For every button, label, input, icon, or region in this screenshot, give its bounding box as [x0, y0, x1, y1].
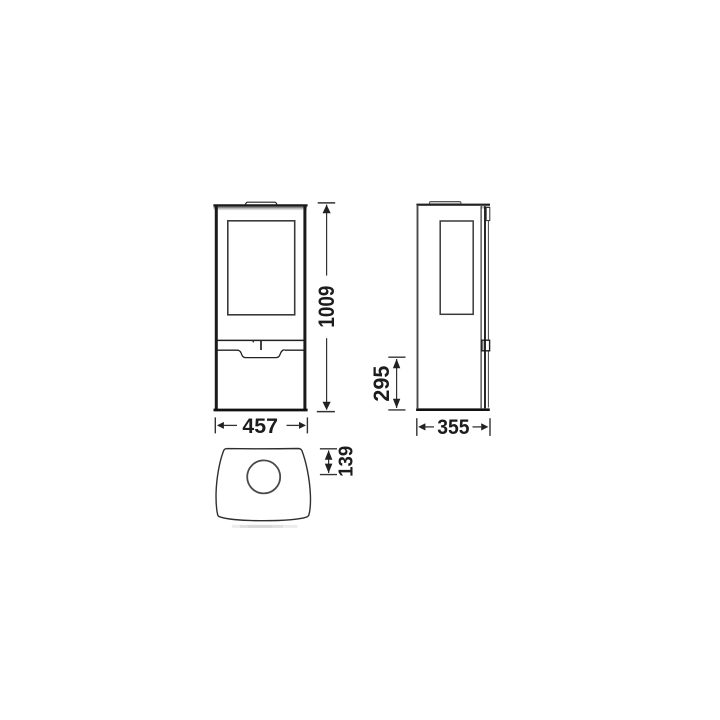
svg-text:1009: 1009	[314, 286, 339, 328]
svg-text:355: 355	[437, 416, 470, 439]
svg-text:457: 457	[242, 415, 278, 438]
svg-text:295: 295	[369, 366, 394, 402]
svg-text:139: 139	[335, 446, 358, 477]
